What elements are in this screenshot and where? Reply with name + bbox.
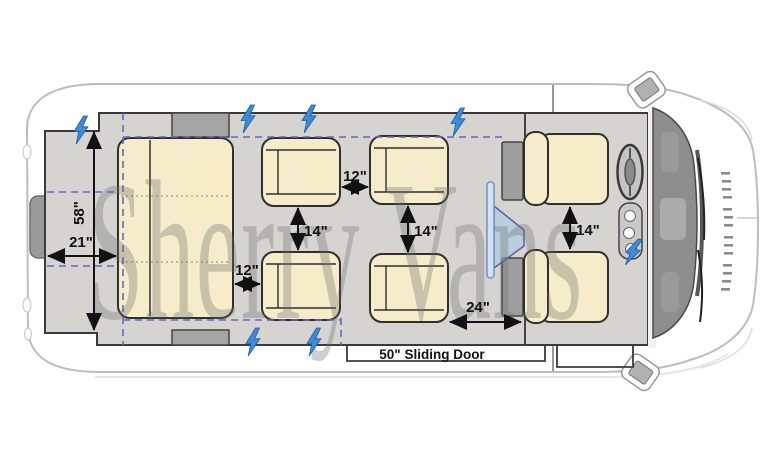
- windshield-reflection-3: [661, 272, 679, 312]
- watermark: Sherry Vans: [88, 141, 583, 362]
- dim-14-left-label: 14": [304, 223, 328, 240]
- rear-hinge-bottom: [23, 298, 31, 312]
- dim-14-front-label: 14": [576, 222, 600, 239]
- dim-24-label: 24": [466, 299, 490, 316]
- rear-hinge-top: [23, 145, 31, 159]
- van-floor-plan: Sherry Vans 58" 21" 12" 12" 14" 14" 14" …: [0, 0, 762, 456]
- dim-14-right-label: 14": [414, 223, 438, 240]
- floor-plan-canvas: Sherry Vans 58" 21" 12" 12" 14" 14" 14" …: [0, 0, 762, 456]
- sliding-door-label: 50" Sliding Door: [379, 347, 485, 362]
- dim-12-top-label: 12": [343, 168, 367, 185]
- wheel-well-top: [172, 113, 229, 137]
- windshield-reflection-2: [661, 132, 679, 172]
- steering-wheel-icon: [618, 145, 643, 199]
- dim-58-label: 58": [71, 201, 88, 225]
- dim-12-bottom-label: 12": [235, 262, 259, 279]
- windshield-reflection-1: [660, 198, 686, 240]
- dim-21-label: 21": [69, 234, 93, 251]
- rear-hinge-lower: [25, 328, 32, 340]
